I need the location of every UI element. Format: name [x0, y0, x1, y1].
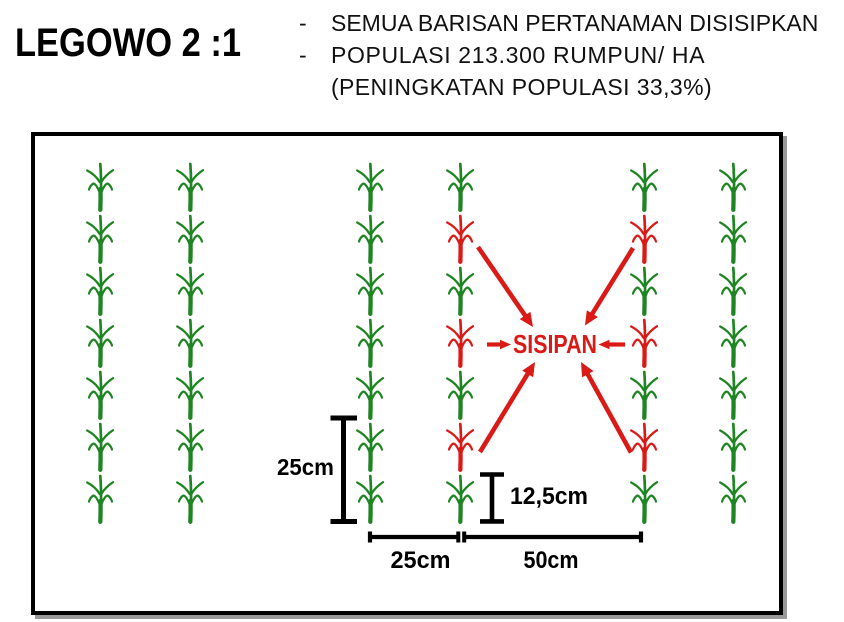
svg-text:SISIPAN: SISIPAN	[513, 329, 597, 359]
svg-text:25cm: 25cm	[391, 547, 451, 574]
svg-text:25cm: 25cm	[277, 454, 334, 480]
svg-text:12,5cm: 12,5cm	[510, 483, 588, 510]
svg-text:50cm: 50cm	[524, 547, 579, 574]
